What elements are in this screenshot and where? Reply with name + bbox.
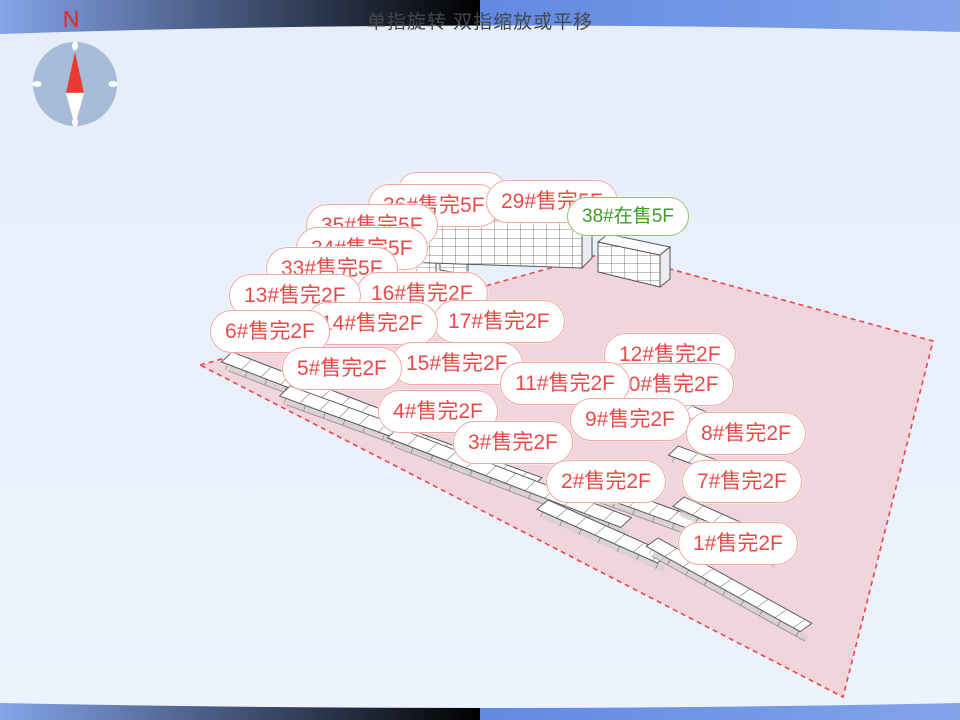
sky-band-bottom — [0, 703, 960, 720]
building-label-38[interactable]: 38#在售5F — [567, 197, 689, 236]
gesture-hint-text: 单指旋转 双指缩放或平移 — [0, 7, 960, 34]
sandbox-map-view[interactable]: 单指旋转 双指缩放或平移 N 36#售完5F 29#售完5F 38#在售5F 3… — [0, 0, 960, 720]
building-label-7[interactable]: 7#售完2F — [682, 460, 802, 503]
building-label-8[interactable]: 8#售完2F — [686, 412, 806, 455]
building-label-3[interactable]: 3#售完2F — [453, 421, 573, 464]
compass-widget[interactable] — [20, 18, 130, 143]
building-label-2[interactable]: 2#售完2F — [546, 460, 666, 503]
building-label-5[interactable]: 5#售完2F — [282, 347, 402, 390]
building-label-1[interactable]: 1#售完2F — [678, 522, 798, 565]
building-label-17[interactable]: 17#售完2F — [433, 300, 565, 343]
building-label-9[interactable]: 9#售完2F — [570, 398, 690, 441]
